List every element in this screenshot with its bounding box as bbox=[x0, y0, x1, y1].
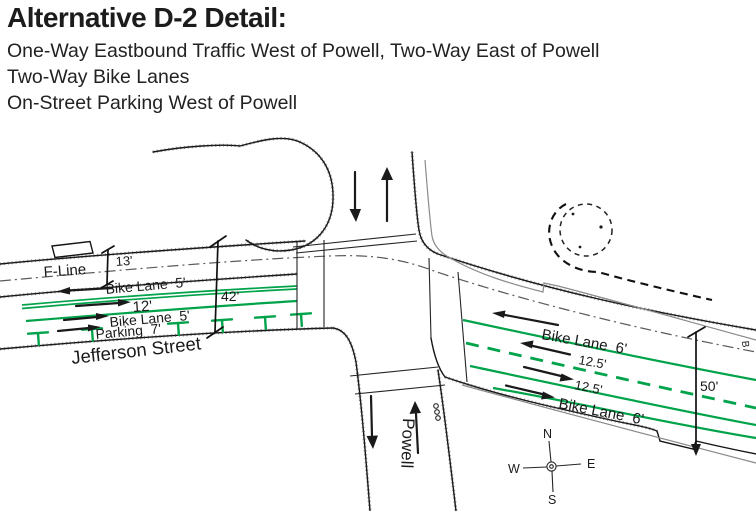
sidewalk-line-northeast bbox=[425, 160, 756, 340]
powell-west-edge-south-texture bbox=[333, 328, 370, 511]
powell-street bbox=[153, 138, 756, 511]
future-track-loop bbox=[549, 204, 712, 300]
sidewalk-line-southeast bbox=[462, 385, 756, 463]
dashed-track-curve bbox=[549, 204, 712, 300]
dim-50-label: 50' bbox=[700, 378, 718, 394]
turnaround-bulb-texture bbox=[153, 138, 333, 250]
alternative-d2-plan-sheet: Alternative D-2 Detail: One-Way Eastboun… bbox=[0, 0, 756, 511]
compass-west-label: W bbox=[508, 462, 520, 476]
street-plan-diagram: N W E S F-Line 13' Bike Lane 5' 12' Bike… bbox=[0, 0, 756, 511]
compass-rose: N W E S bbox=[508, 427, 595, 507]
transit-platform bbox=[52, 242, 93, 258]
turnaround-bulb bbox=[153, 138, 333, 250]
compass-north-label: N bbox=[543, 427, 552, 441]
signal-pole-symbol bbox=[434, 404, 441, 421]
compass-east-label: E bbox=[587, 457, 595, 471]
powell-north-arrows bbox=[350, 167, 394, 222]
dashed-loop-circle bbox=[560, 204, 612, 256]
f-line-label: F-Line bbox=[43, 261, 87, 281]
dim-13-label: 13' bbox=[115, 253, 133, 269]
compass-south-label: S bbox=[548, 493, 556, 507]
powell-east-edge-north bbox=[412, 152, 756, 330]
powell-east-edge-north-texture bbox=[412, 152, 756, 330]
edge-letter-label: B bbox=[739, 340, 751, 348]
powell-street-label: Powell bbox=[397, 418, 418, 469]
dim-42-label: 42' bbox=[221, 288, 239, 304]
lane-125-eb-label: 12.5' bbox=[573, 377, 603, 397]
powell-west-edge-south bbox=[333, 328, 370, 511]
